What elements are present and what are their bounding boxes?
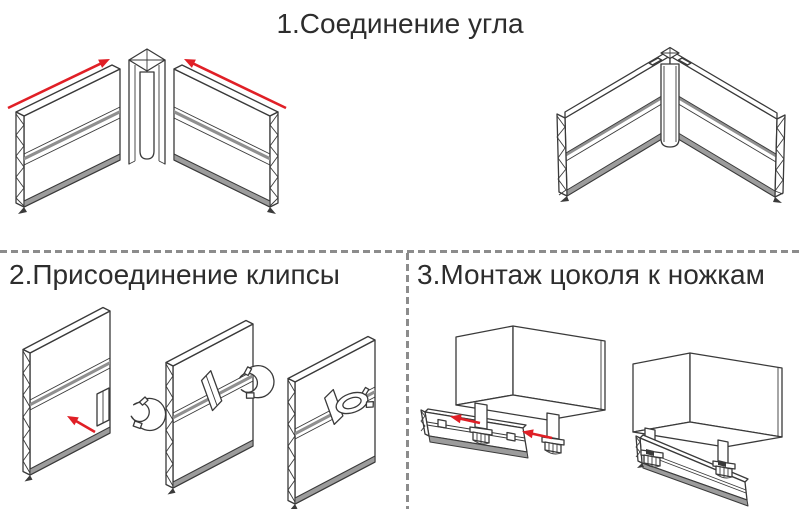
corner-profile (129, 49, 165, 164)
corner-joining-illustration (2, 46, 302, 231)
step1-title: 1.Соединение угла (0, 9, 800, 40)
clip-stage-2 (166, 321, 278, 495)
vertical-divider (406, 253, 409, 509)
clip-stage-3 (288, 337, 376, 509)
right-plinth-panel (174, 65, 278, 214)
step2-title: 2.Присоединение клипсы (9, 260, 340, 291)
mounting-stage (421, 326, 605, 458)
mounted-stage (633, 353, 782, 506)
clip-stage-1 (23, 308, 166, 482)
assembled-corner (557, 48, 785, 204)
step3-title: 3.Монтаж цоколя к ножкам (417, 260, 765, 291)
plinth-clip (438, 420, 446, 429)
corner-assembled-illustration (545, 48, 795, 223)
plinth-mounting-illustration (412, 300, 800, 509)
clip-attachment-illustration (0, 302, 405, 509)
plinth-clip (507, 433, 515, 442)
plinth-assembly-instruction-sheet: 1.Соединение угла 2.Присоединение клипсы… (0, 0, 800, 509)
left-plinth-panel (16, 65, 120, 214)
horizontal-divider (0, 250, 800, 253)
